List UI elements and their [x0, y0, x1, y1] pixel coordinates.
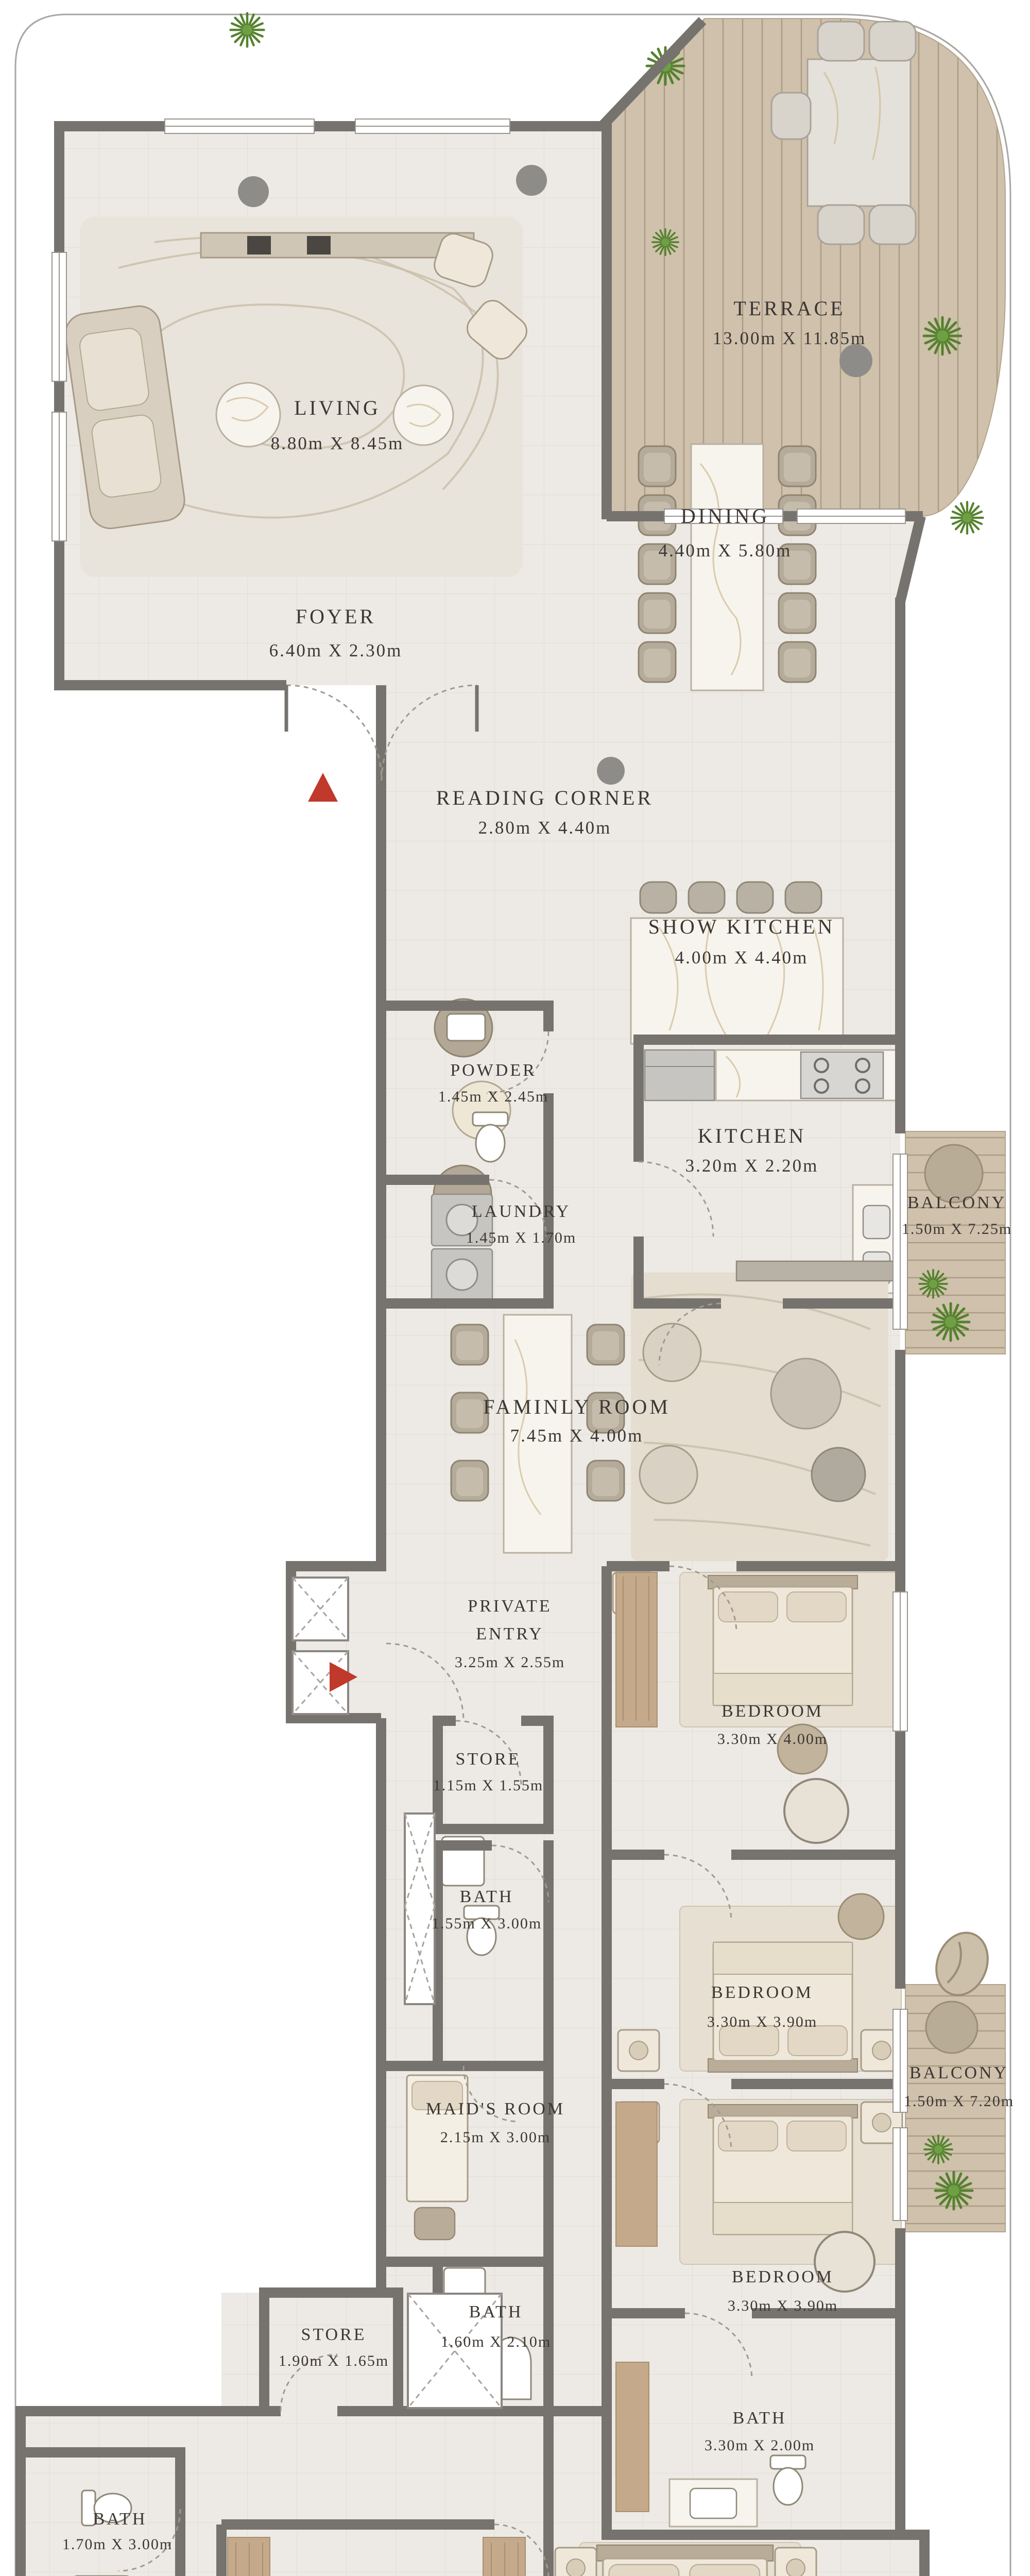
label-bedroom-2-name: BEDROOM — [711, 1983, 813, 2002]
label-bath-4-dims: 1.70m X 3.00m — [62, 2536, 173, 2553]
label-store-1-name: STORE — [455, 1750, 521, 1769]
label-bedroom-3-name: BEDROOM — [732, 2267, 834, 2286]
master-bedroom-furniture — [555, 2543, 855, 2576]
label-foyer-name: FOYER — [296, 605, 376, 628]
label-bath-3-name: BATH — [733, 2409, 787, 2428]
media-console — [201, 233, 474, 258]
label-terrace-dims: 13.00m X 11.85m — [713, 328, 866, 348]
label-powder-dims: 1.45m X 2.45m — [438, 1088, 548, 1105]
label-private-entry-dims: 3.25m X 2.55m — [455, 1654, 565, 1671]
label-kitchen-name: KITCHEN — [698, 1124, 806, 1147]
label-store-2-name: STORE — [301, 2325, 366, 2344]
floor-plan-canvas: TERRACE 13.00m X 11.85m LIVING 8.80m X 8… — [0, 0, 1030, 2576]
cooktop — [801, 1052, 883, 1098]
label-kitchen-dims: 3.20m X 2.20m — [685, 1156, 819, 1176]
dining-furniture — [639, 444, 816, 690]
label-laundry-name: LAUNDRY — [472, 1202, 571, 1221]
pouf — [812, 1448, 865, 1501]
lounge-chair — [640, 1446, 697, 1503]
label-reading-corner-name: READING CORNER — [436, 786, 654, 809]
pouf — [771, 1359, 841, 1429]
label-balcony-2-name: BALCONY — [909, 2063, 1008, 2082]
label-bath-1-name: BATH — [460, 1887, 514, 1906]
label-dining-name: DINING — [681, 504, 769, 528]
label-balcony-1-name: BALCONY — [907, 1193, 1006, 1212]
label-maids-room-name: MAID'S ROOM — [426, 2099, 565, 2119]
entry-arrow-icon — [308, 773, 357, 1692]
maid-chair — [415, 2208, 455, 2240]
label-bedroom-1-dims: 3.30m X 4.00m — [717, 1731, 828, 1748]
label-store-1-dims: 1.15m X 1.55m — [433, 1777, 543, 1794]
label-bedroom-3-dims: 3.30m X 3.90m — [728, 2297, 838, 2314]
label-bath-3-dims: 3.30m X 2.00m — [705, 2437, 815, 2454]
label-balcony-1-dims: 1.50m X 7.25m — [902, 1221, 1012, 1238]
label-laundry-dims: 1.45m X 1.70m — [466, 1229, 576, 1246]
lounge-chair — [784, 1779, 848, 1843]
label-maids-room-dims: 2.15m X 3.00m — [440, 2129, 551, 2146]
label-family-room-name: FAMINLY ROOM — [483, 1395, 671, 1418]
label-store-2-dims: 1.90m X 1.65m — [279, 2352, 389, 2369]
label-terrace-name: TERRACE — [733, 297, 845, 320]
label-balcony-2-dims: 1.50m X 7.20m — [904, 2093, 1014, 2110]
label-dining-dims: 4.40m X 5.80m — [659, 540, 792, 561]
label-private-entry-name-1: PRIVATE — [468, 1597, 552, 1616]
lounge-chair — [643, 1324, 701, 1381]
label-bath-4-name: BATH — [93, 2510, 147, 2529]
label-reading-corner-dims: 2.80m X 4.40m — [478, 818, 612, 838]
label-bath-2-dims: 1.60m X 2.10m — [441, 2333, 551, 2350]
family-tv-console — [736, 1261, 896, 1281]
label-bath-2-name: BATH — [469, 2302, 523, 2321]
label-living-name: LIVING — [294, 396, 381, 419]
label-private-entry-name-2: ENTRY — [476, 1624, 543, 1643]
label-bedroom-2-dims: 3.30m X 3.90m — [707, 2013, 817, 2030]
refrigerator — [645, 1050, 714, 1100]
label-bedroom-1-name: BEDROOM — [722, 1702, 823, 1721]
pouf — [838, 1894, 884, 1939]
dining-table — [691, 444, 763, 690]
label-show-kitchen-dims: 4.00m X 4.40m — [675, 947, 809, 968]
wardrobe — [616, 2102, 657, 2246]
label-living-dims: 8.80m X 8.45m — [271, 433, 404, 453]
wardrobe — [616, 2362, 649, 2512]
label-family-room-dims: 7.45m X 4.00m — [510, 1426, 644, 1446]
terrace-deck — [607, 19, 1005, 516]
label-foyer-dims: 6.40m X 2.30m — [269, 640, 403, 660]
label-powder-name: POWDER — [450, 1061, 537, 1080]
label-bath-1-dims: 1.55m X 3.00m — [432, 1915, 542, 1932]
label-show-kitchen-name: SHOW KITCHEN — [648, 915, 835, 938]
